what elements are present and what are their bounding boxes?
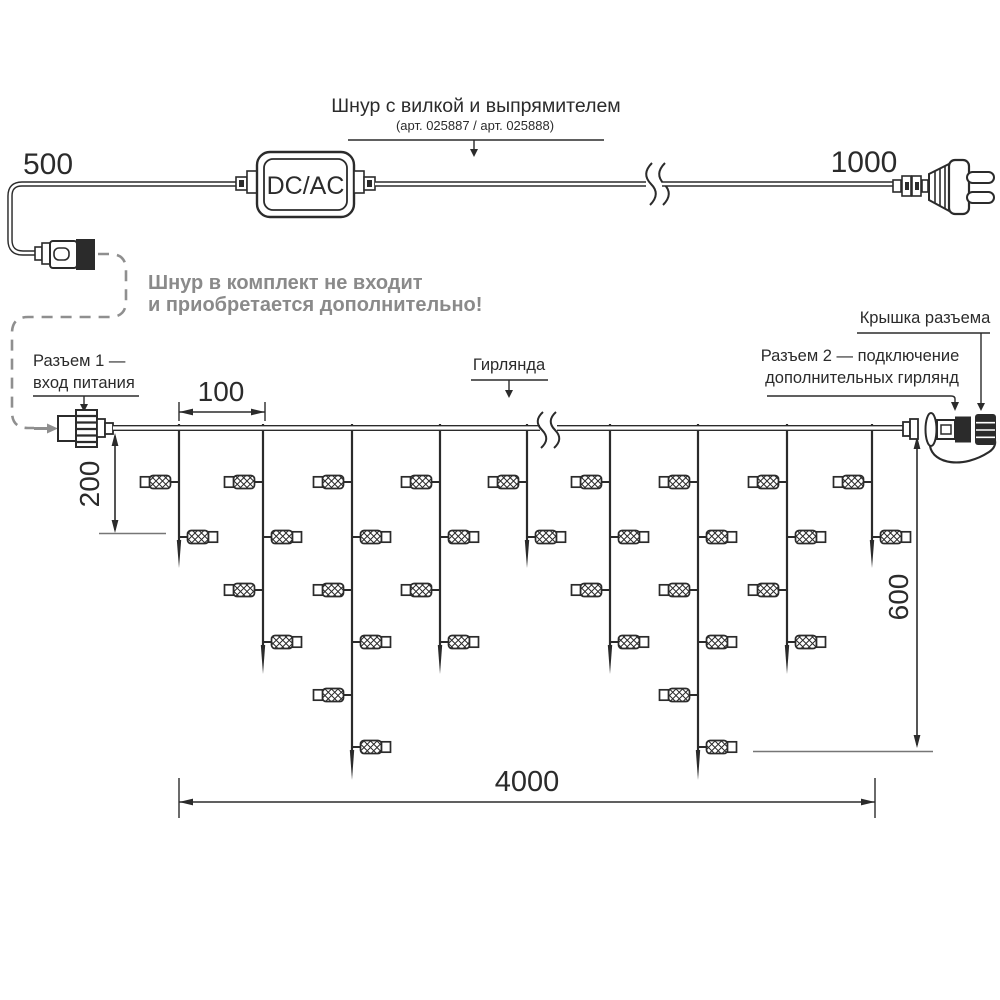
connector1-gland-1 bbox=[97, 419, 105, 437]
lamp-body bbox=[411, 476, 432, 489]
lamp-body bbox=[272, 531, 293, 544]
note-line1: Шнур в комплект не входит bbox=[148, 272, 423, 294]
garland-section: Разъем 1 — вход питания Гирля bbox=[33, 309, 996, 818]
lamp-body bbox=[843, 476, 864, 489]
dashed-connection-path bbox=[12, 254, 126, 428]
lamp-body bbox=[323, 476, 344, 489]
connector-black-cap bbox=[76, 239, 95, 270]
lamp-cap bbox=[470, 532, 479, 542]
lamp-body bbox=[619, 531, 640, 544]
connector2-black-section bbox=[955, 417, 971, 443]
lamp-cap bbox=[314, 585, 323, 595]
dim-200-text: 200 bbox=[74, 461, 105, 508]
lamp-body bbox=[581, 584, 602, 597]
lamp-cap bbox=[902, 532, 911, 542]
lamp-body bbox=[234, 584, 255, 597]
icicle-drop bbox=[749, 424, 826, 674]
connector1-label-line2: вход питания bbox=[33, 374, 135, 392]
dim-4000-text: 4000 bbox=[495, 766, 560, 798]
connector2-arrowhead bbox=[951, 402, 959, 411]
garland-connector1 bbox=[58, 410, 113, 447]
dim-200-arrow-up bbox=[112, 433, 119, 446]
icicle-drop bbox=[660, 424, 737, 780]
drop-tip bbox=[870, 540, 874, 568]
dim-100: 100 bbox=[179, 376, 265, 421]
lamp-cap bbox=[225, 585, 234, 595]
lamp-cap bbox=[728, 637, 737, 647]
connector2-ring bbox=[926, 413, 937, 446]
lamp-body bbox=[449, 531, 470, 544]
icicle-drop bbox=[141, 424, 218, 568]
lamp-body bbox=[449, 636, 470, 649]
dim-600-arrow-down bbox=[914, 735, 921, 748]
gland-left bbox=[247, 171, 257, 193]
drop-tip bbox=[177, 540, 181, 568]
dim-500-text: 500 bbox=[23, 148, 73, 181]
strain-relief-4 bbox=[922, 180, 928, 192]
gland-small bbox=[35, 247, 42, 260]
strain-relief-mark-1 bbox=[905, 182, 909, 190]
plug-face bbox=[949, 160, 969, 214]
input-arrowhead bbox=[47, 424, 58, 434]
dim-4000: 4000 bbox=[179, 766, 875, 818]
lamp-body bbox=[669, 476, 690, 489]
gland-h-left-mark bbox=[239, 180, 244, 187]
lamp-body bbox=[619, 636, 640, 649]
dim-4000-arrow-left bbox=[179, 799, 193, 806]
icicle-drop bbox=[834, 424, 911, 568]
lamp-cap bbox=[640, 637, 649, 647]
connector2-label-line2: дополнительных гирлянд bbox=[765, 369, 959, 387]
lamp-cap bbox=[660, 585, 669, 595]
diagram-page: Шнур с вилкой и выпрямителем (арт. 02588… bbox=[0, 0, 1000, 1000]
lamp-cap bbox=[728, 532, 737, 542]
lamp-body bbox=[707, 636, 728, 649]
lamp-body bbox=[707, 531, 728, 544]
icicle-drop bbox=[489, 424, 566, 568]
connector2-label-line1: Разъем 2 — подключение bbox=[761, 347, 960, 365]
connector2-leader-line bbox=[767, 396, 955, 402]
lamp-cap bbox=[572, 585, 581, 595]
lamp-cap bbox=[470, 637, 479, 647]
icicle-garland-diagram: Шнур с вилкой и выпрямителем (арт. 02588… bbox=[0, 0, 1000, 1000]
dcac-converter: DC/AC bbox=[236, 152, 375, 217]
drop-tip bbox=[785, 645, 789, 674]
lamp-body bbox=[498, 476, 519, 489]
lamp-body bbox=[361, 741, 382, 754]
dim-4000-arrow-right bbox=[861, 799, 875, 806]
lamp-cap bbox=[749, 585, 758, 595]
lamp-body bbox=[361, 531, 382, 544]
lamp-cap bbox=[834, 477, 843, 487]
icicle-drops bbox=[141, 424, 911, 780]
lamp-cap bbox=[660, 477, 669, 487]
lamp-cap bbox=[314, 477, 323, 487]
lamp-body bbox=[707, 741, 728, 754]
cord-label: Шнур с вилкой и выпрямителем bbox=[331, 95, 620, 117]
lamp-body bbox=[234, 476, 255, 489]
mains-plug bbox=[893, 160, 994, 214]
lamp-cap bbox=[817, 532, 826, 542]
garland-arrowhead bbox=[505, 390, 513, 398]
cable-break-curve1 bbox=[646, 163, 656, 205]
plug-prong-top bbox=[967, 172, 994, 183]
icicle-drop bbox=[225, 424, 302, 674]
drop-tip bbox=[608, 645, 612, 674]
cap-arrowhead bbox=[977, 403, 985, 411]
lamp-cap bbox=[402, 477, 411, 487]
lamp-body bbox=[796, 636, 817, 649]
gland-large bbox=[42, 243, 50, 264]
lamp-body bbox=[669, 584, 690, 597]
lamp-cap bbox=[489, 477, 498, 487]
lamp-cap bbox=[382, 637, 391, 647]
plug-prong-bottom bbox=[967, 192, 994, 203]
lamp-cap bbox=[225, 477, 234, 487]
drop-tip bbox=[350, 750, 354, 780]
connector2-body bbox=[937, 420, 955, 439]
connector1-nose bbox=[58, 416, 76, 441]
gland-right bbox=[354, 171, 364, 193]
drop-tip bbox=[261, 645, 265, 674]
icicle-drop bbox=[314, 424, 391, 780]
dim-100-arrow-right bbox=[251, 409, 265, 416]
dim-100-text: 100 bbox=[198, 376, 245, 407]
lamp-body bbox=[758, 476, 779, 489]
lamp-body bbox=[323, 689, 344, 702]
cap-label: Крышка разъема bbox=[860, 309, 991, 327]
dim-100-arrow-left bbox=[179, 409, 193, 416]
lamp-cap bbox=[209, 532, 218, 542]
lamp-cap bbox=[141, 477, 150, 487]
lamp-cap bbox=[382, 742, 391, 752]
connector2-gland-1 bbox=[903, 422, 910, 436]
lamp-body bbox=[881, 531, 902, 544]
icicle-drop bbox=[402, 424, 479, 674]
lamp-body bbox=[669, 689, 690, 702]
drop-tip bbox=[696, 750, 700, 780]
dim-1000-text: 1000 bbox=[831, 146, 898, 179]
lamp-body bbox=[536, 531, 557, 544]
lamp-body bbox=[796, 531, 817, 544]
lamp-cap bbox=[293, 637, 302, 647]
lamp-cap bbox=[640, 532, 649, 542]
strain-relief-1 bbox=[893, 180, 901, 192]
garland-label: Гирлянда bbox=[473, 356, 546, 374]
dim-200-arrow-down bbox=[112, 520, 119, 533]
lamp-body bbox=[581, 476, 602, 489]
lamp-cap bbox=[749, 477, 758, 487]
connector1-gland-2 bbox=[105, 423, 113, 434]
cord-output-connector bbox=[35, 239, 95, 270]
cord-label-arrowhead bbox=[470, 149, 478, 157]
strain-relief-mark-2 bbox=[915, 182, 919, 190]
connector-latch bbox=[54, 248, 69, 260]
gland-h-right-mark bbox=[367, 180, 372, 187]
icicle-drop bbox=[572, 424, 649, 674]
lamp-cap bbox=[572, 477, 581, 487]
lamp-body bbox=[323, 584, 344, 597]
cord-art-numbers: (арт. 025887 / арт. 025888) bbox=[396, 118, 554, 133]
lamp-cap bbox=[314, 690, 323, 700]
lamp-body bbox=[188, 531, 209, 544]
lamp-cap bbox=[728, 742, 737, 752]
lamp-body bbox=[758, 584, 779, 597]
converter-text: DC/AC bbox=[267, 172, 345, 200]
lamp-cap bbox=[817, 637, 826, 647]
connector1-label-line1: Разъем 1 — bbox=[33, 352, 126, 370]
connector2-gland-2 bbox=[910, 419, 918, 439]
lamp-body bbox=[272, 636, 293, 649]
drop-tip bbox=[525, 540, 529, 568]
lamp-cap bbox=[382, 532, 391, 542]
lamp-cap bbox=[557, 532, 566, 542]
lamp-body bbox=[361, 636, 382, 649]
dim-600-text: 600 bbox=[883, 574, 914, 621]
lamp-body bbox=[411, 584, 432, 597]
lamp-cap bbox=[293, 532, 302, 542]
drop-tip bbox=[438, 645, 442, 674]
lamp-body bbox=[150, 476, 171, 489]
lamp-cap bbox=[402, 585, 411, 595]
lamp-cap bbox=[660, 690, 669, 700]
note-line2: и приобретается дополнительно! bbox=[148, 294, 482, 316]
